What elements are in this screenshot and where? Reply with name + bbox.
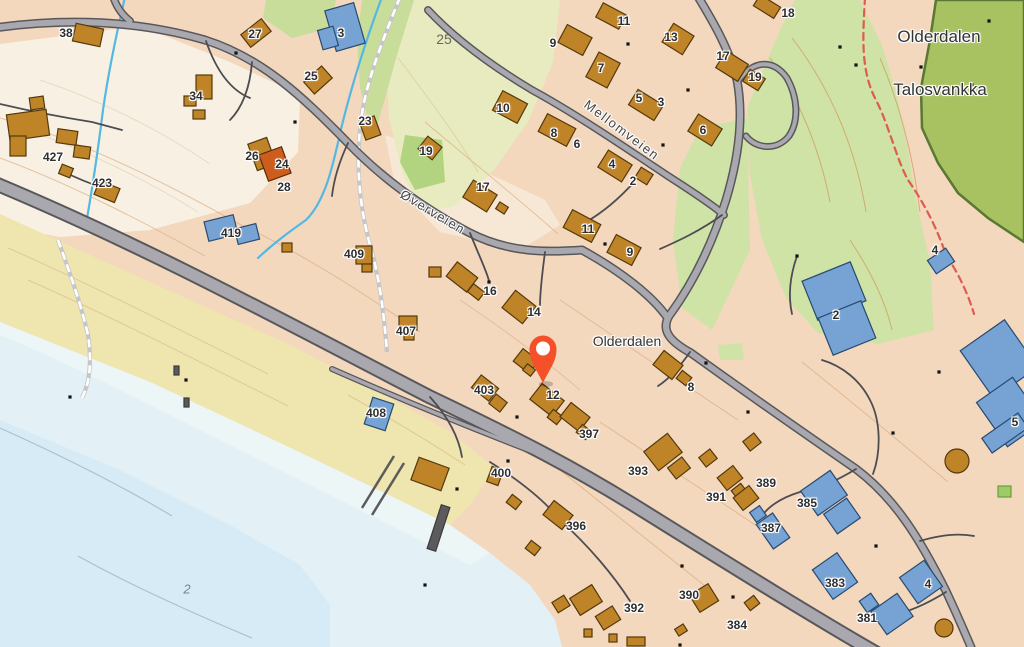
building bbox=[362, 264, 372, 272]
building bbox=[29, 96, 45, 110]
point-marker bbox=[970, 83, 973, 86]
point-marker bbox=[678, 643, 681, 646]
round-structure bbox=[935, 619, 953, 637]
point-marker bbox=[506, 459, 509, 462]
point-marker bbox=[838, 45, 841, 48]
point-marker bbox=[937, 370, 940, 373]
pin-shadow bbox=[539, 381, 553, 387]
point-marker bbox=[68, 395, 71, 398]
point-marker bbox=[919, 65, 922, 68]
building bbox=[627, 637, 645, 646]
point-marker bbox=[874, 544, 877, 547]
point-marker bbox=[455, 487, 458, 490]
green-patch bbox=[998, 486, 1011, 497]
building bbox=[56, 129, 78, 146]
point-marker bbox=[661, 143, 664, 146]
point-marker bbox=[423, 583, 426, 586]
point-marker bbox=[854, 63, 857, 66]
building bbox=[404, 332, 414, 340]
point-marker bbox=[987, 19, 990, 22]
building bbox=[584, 629, 592, 637]
building bbox=[399, 316, 417, 330]
point-marker bbox=[731, 595, 734, 598]
point-marker bbox=[293, 120, 296, 123]
building bbox=[196, 75, 212, 99]
point-marker bbox=[680, 564, 683, 567]
point-marker bbox=[574, 141, 577, 144]
round-structure bbox=[945, 449, 969, 473]
pin-hole bbox=[536, 342, 550, 356]
map-artwork bbox=[0, 0, 1024, 647]
pier bbox=[184, 398, 189, 407]
point-marker bbox=[603, 242, 606, 245]
point-marker bbox=[795, 254, 798, 257]
point-marker bbox=[184, 378, 187, 381]
point-marker bbox=[626, 42, 629, 45]
point-marker bbox=[487, 280, 490, 283]
pier bbox=[174, 366, 179, 375]
building bbox=[609, 634, 617, 642]
building bbox=[356, 246, 372, 264]
building bbox=[429, 267, 441, 277]
point-marker bbox=[891, 431, 894, 434]
building bbox=[10, 136, 26, 156]
point-marker bbox=[746, 410, 749, 413]
building bbox=[282, 243, 292, 252]
green-patch-small bbox=[718, 343, 744, 360]
building bbox=[184, 96, 196, 106]
building bbox=[73, 145, 91, 159]
building bbox=[193, 110, 205, 119]
point-marker bbox=[686, 88, 689, 91]
point-marker bbox=[704, 361, 707, 364]
point-marker bbox=[515, 415, 518, 418]
map-canvas[interactable]: 3827334252319172624284274234194094071614… bbox=[0, 0, 1024, 647]
point-marker bbox=[234, 51, 237, 54]
